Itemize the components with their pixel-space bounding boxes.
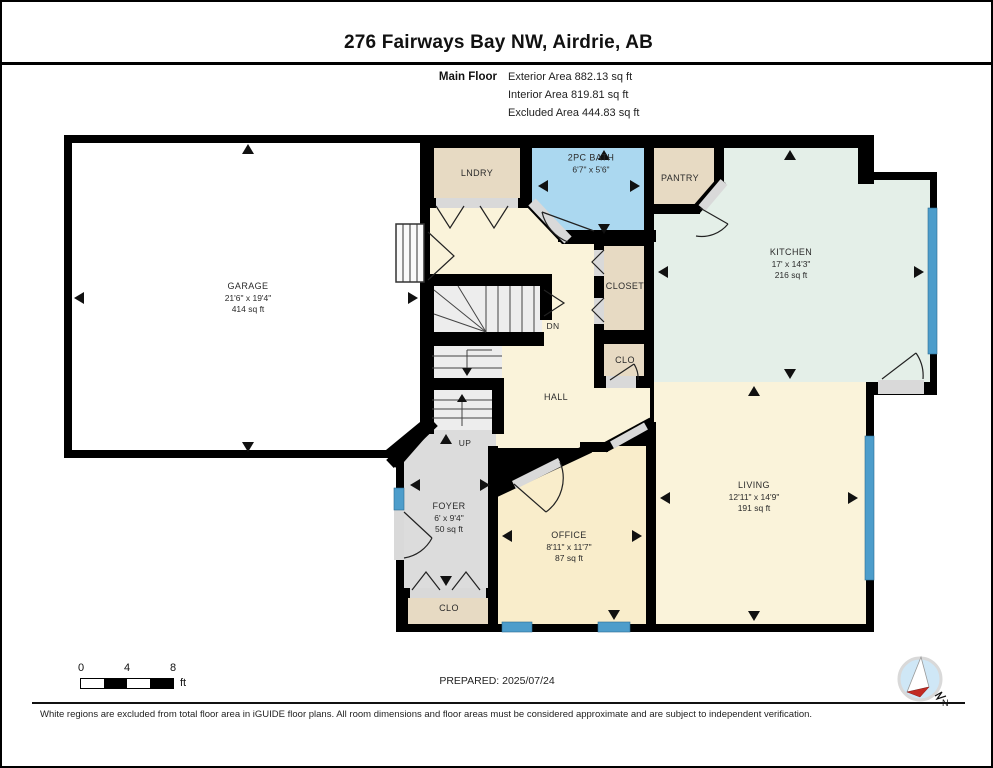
window-living [865,436,874,580]
floorplan-drawing: N [2,2,993,768]
footer-divider [32,702,965,704]
window-foyer [394,488,404,510]
label-pantry: PANTRY [661,173,699,185]
label-closet-foyer: CLO [439,603,459,615]
scale-bar-segments [80,678,174,689]
label-hall: HALL [544,392,568,404]
floorplan-page: 276 Fairways Bay NW, Airdrie, AB Main Fl… [0,0,993,768]
label-closet-hall: CLO [615,355,635,367]
stairs-up-run [432,390,502,430]
stairs-dn-upper [432,284,542,334]
prepared-date: PREPARED: 2025/07/24 [347,675,647,687]
label-office: OFFICE 8'11" x 11'7" 87 sq ft [546,530,591,564]
scale-tick-4: 4 [124,662,130,674]
scale-bar: 0 4 8 ft [62,662,212,694]
scale-unit: ft [180,677,186,689]
compass-icon: N [899,657,949,708]
label-foyer: FOYER 6' x 9'4" 50 sq ft [432,501,465,535]
label-closet: CLOSET [606,281,644,293]
scale-tick-8: 8 [170,662,176,674]
garage-steps [396,224,424,282]
disclaimer-text: White regions are excluded from total fl… [40,709,970,720]
label-kitchen: KITCHEN 17' x 14'3" 216 sq ft [770,247,812,281]
window-office-2 [598,622,630,632]
window-kitchen [928,208,937,354]
scale-tick-0: 0 [78,662,84,674]
label-garage: GARAGE 21'6" x 19'4" 414 sq ft [225,281,272,315]
label-laundry: LNDRY [461,168,493,180]
label-bath: 2PC BATH 6'7" x 5'6" [568,153,615,176]
window-office-1 [502,622,532,632]
label-living: LIVING 12'11" x 14'9" 191 sq ft [729,480,780,514]
label-stairs-dn: DN [547,321,560,331]
label-stairs-up: UP [459,438,471,448]
